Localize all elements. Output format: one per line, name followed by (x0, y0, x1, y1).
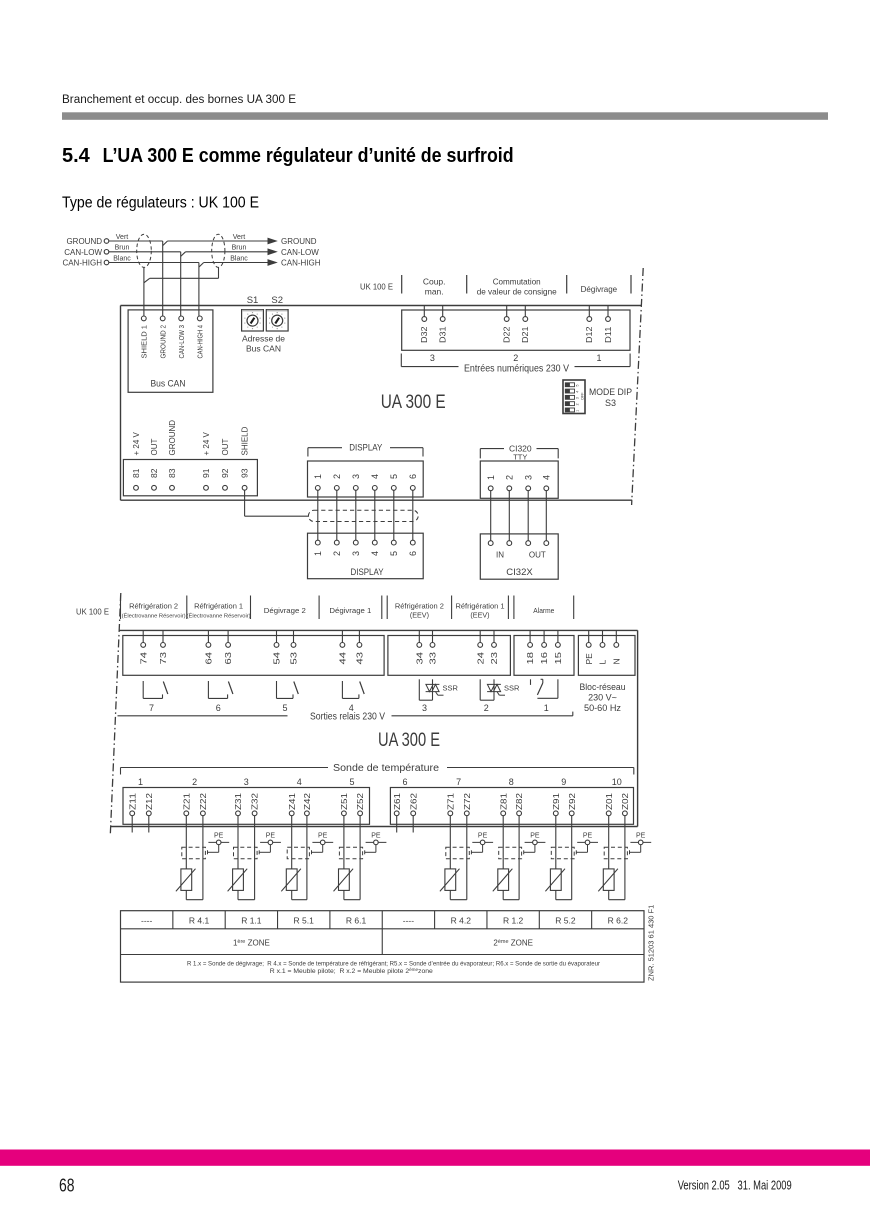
svg-text:L: L (598, 660, 608, 665)
svg-text:Z62: Z62 (408, 793, 418, 810)
svg-text:D12: D12 (585, 326, 594, 343)
svg-text:3: 3 (244, 777, 249, 787)
svg-text:GROUND: GROUND (168, 420, 177, 456)
svg-text:3: 3 (422, 703, 427, 713)
svg-text:82: 82 (149, 468, 159, 478)
svg-text:Dégivrage 2: Dégivrage 2 (264, 606, 306, 615)
svg-text:Réfrigération 1: Réfrigération 1 (194, 602, 243, 611)
svg-text:93: 93 (240, 468, 250, 478)
svg-text:Z01: Z01 (604, 793, 614, 810)
svg-text:4: 4 (576, 391, 580, 393)
svg-text:15: 15 (553, 652, 563, 665)
svg-text:4: 4 (370, 551, 380, 556)
svg-text:3: 3 (523, 475, 533, 480)
svg-text:1: 1 (313, 474, 323, 479)
svg-text:5.4: 5.4 (62, 145, 91, 167)
svg-text:de valeur de consigne: de valeur de consigne (477, 287, 557, 297)
svg-text:CAN-LOW: CAN-LOW (64, 248, 102, 257)
svg-text:Dégivrage: Dégivrage (581, 284, 618, 294)
svg-text:91: 91 (201, 468, 211, 478)
svg-text:L’UA 300 E comme régulateur d’: L’UA 300 E comme régulateur d’unité de s… (103, 145, 514, 167)
svg-text:Z71: Z71 (445, 793, 455, 810)
svg-text:CAN-HIGH 4: CAN-HIGH 4 (196, 325, 205, 359)
svg-text:(EEV): (EEV) (410, 610, 429, 619)
svg-text:(Électrovanne Réservoir): (Électrovanne Réservoir) (122, 612, 186, 619)
svg-text:83: 83 (167, 468, 177, 478)
svg-text:Réfrigération 1: Réfrigération 1 (456, 602, 505, 611)
svg-text:Bus CAN: Bus CAN (246, 344, 281, 354)
svg-text:Z11: Z11 (127, 793, 137, 810)
svg-text:UA 300 E: UA 300 E (378, 730, 440, 751)
svg-text:Blanc: Blanc (113, 255, 131, 262)
svg-text:Type de régulateurs : UK 100 E: Type de régulateurs : UK 100 E (62, 195, 259, 212)
svg-text:D11: D11 (604, 326, 613, 343)
svg-text:R 1.x = Sonde de dégivrage; R: R 1.x = Sonde de dégivrage; R 4.x = Sond… (187, 960, 601, 967)
svg-text:----: ---- (141, 916, 152, 926)
svg-text:1: 1 (544, 703, 549, 713)
svg-text:Vert: Vert (116, 234, 129, 241)
svg-text:1ère ZONE: 1ère ZONE (233, 939, 270, 948)
svg-text:4: 4 (297, 777, 302, 787)
svg-text:2: 2 (332, 474, 342, 479)
svg-text:Sonde de température: Sonde de température (333, 763, 439, 774)
svg-text:UK 100 E: UK 100 E (360, 282, 393, 292)
svg-text:6: 6 (408, 474, 418, 479)
svg-text:D31: D31 (439, 326, 448, 343)
svg-text:Z42: Z42 (302, 793, 312, 810)
svg-text:1: 1 (596, 353, 601, 363)
svg-text:44: 44 (337, 652, 347, 665)
svg-text:PE: PE (636, 832, 646, 839)
svg-text:23: 23 (489, 652, 499, 665)
svg-text:R x.1 = Meuble pilote; R x.2: R x.1 = Meuble pilote; R x.2 = Meuble pi… (270, 967, 433, 975)
svg-text:3: 3 (430, 353, 435, 363)
svg-text:CAN-HIGH: CAN-HIGH (281, 259, 321, 268)
svg-text:SHIELD: SHIELD (240, 426, 249, 455)
svg-text:6: 6 (216, 703, 221, 713)
svg-text:UA 300 E: UA 300 E (381, 392, 446, 413)
svg-text:OFF: OFF (580, 392, 584, 400)
svg-text:Z92: Z92 (567, 793, 577, 810)
svg-text:OUT: OUT (529, 551, 546, 560)
svg-text:5: 5 (389, 474, 399, 479)
svg-text:Entrées numériques 230 V: Entrées numériques 230 V (464, 364, 569, 375)
svg-text:PE: PE (318, 832, 328, 839)
svg-text:PE: PE (584, 653, 594, 665)
svg-text:CAN-HIGH: CAN-HIGH (62, 259, 102, 268)
svg-text:9: 9 (561, 777, 566, 787)
svg-text:43: 43 (354, 652, 364, 665)
svg-text:2: 2 (332, 551, 342, 556)
svg-text:CAN-LOW 3: CAN-LOW 3 (177, 325, 186, 359)
svg-text:Commutation: Commutation (493, 277, 541, 287)
svg-text:CAN-LOW: CAN-LOW (281, 248, 319, 257)
svg-text:2: 2 (484, 703, 489, 713)
svg-text:73: 73 (158, 652, 168, 665)
svg-text:53: 53 (289, 652, 299, 665)
svg-text:Z82: Z82 (514, 793, 524, 810)
svg-text:Blanc: Blanc (230, 255, 248, 262)
svg-text:Dégivrage 1: Dégivrage 1 (329, 606, 371, 615)
svg-text:UK 100 E: UK 100 E (76, 607, 109, 617)
svg-text:64: 64 (203, 652, 213, 665)
svg-text:2: 2 (576, 403, 580, 405)
svg-text:Z32: Z32 (250, 793, 260, 810)
svg-text:GROUND: GROUND (66, 237, 102, 246)
svg-text:R 6.1: R 6.1 (346, 916, 367, 926)
svg-text:Adresse de: Adresse de (242, 334, 285, 344)
svg-text:5: 5 (576, 385, 580, 387)
svg-text:Brun: Brun (115, 245, 130, 252)
svg-text:Z02: Z02 (620, 793, 630, 810)
svg-text:3: 3 (351, 551, 361, 556)
svg-text:54: 54 (272, 652, 282, 665)
svg-text:PE: PE (583, 832, 593, 839)
svg-text:PE: PE (371, 832, 381, 839)
svg-text:Réfrigération 2: Réfrigération 2 (395, 602, 444, 611)
svg-text:7: 7 (149, 703, 154, 713)
svg-text:man.: man. (425, 287, 444, 297)
svg-text:S3: S3 (605, 398, 616, 408)
svg-text:SSR: SSR (504, 683, 520, 692)
svg-text:3: 3 (351, 474, 361, 479)
svg-text:Sorties relais 230 V: Sorties relais 230 V (310, 712, 385, 723)
svg-text:34: 34 (414, 652, 424, 665)
svg-text:5: 5 (389, 551, 399, 556)
svg-text:5: 5 (282, 703, 287, 713)
svg-text:OUT: OUT (221, 439, 230, 456)
svg-text:Brun: Brun (232, 245, 247, 252)
svg-text:(Électrovanne Réservoir): (Électrovanne Réservoir) (187, 612, 251, 619)
svg-text:Z81: Z81 (498, 793, 508, 810)
svg-text:24: 24 (475, 652, 485, 665)
svg-text:Z22: Z22 (198, 793, 208, 810)
svg-text:R 1.1: R 1.1 (241, 916, 262, 926)
svg-text:10: 10 (612, 777, 622, 787)
svg-text:2: 2 (513, 353, 518, 363)
svg-text:MODE DIP: MODE DIP (589, 387, 632, 397)
svg-text:Z41: Z41 (287, 793, 297, 810)
svg-text:Bloc-réseau: Bloc-réseau (580, 682, 626, 692)
svg-text:DISPLAY: DISPLAY (351, 567, 384, 577)
svg-text:6: 6 (408, 551, 418, 556)
svg-text:S2: S2 (271, 295, 283, 306)
svg-text:SSR: SSR (443, 683, 459, 692)
svg-text:IN: IN (496, 551, 504, 560)
svg-text:S1: S1 (247, 295, 259, 306)
svg-text:63: 63 (223, 652, 233, 665)
svg-text:Vert: Vert (233, 234, 246, 241)
svg-text:TTY: TTY (513, 453, 527, 462)
svg-text:R 5.2: R 5.2 (555, 916, 576, 926)
svg-text:D21: D21 (521, 326, 530, 343)
svg-text:R 4.1: R 4.1 (189, 916, 210, 926)
svg-text:+ 24 V: + 24 V (132, 431, 141, 455)
svg-text:Z31: Z31 (233, 793, 243, 810)
svg-text:4: 4 (542, 475, 552, 480)
svg-text:R 6.2: R 6.2 (608, 916, 629, 926)
svg-text:1: 1 (576, 410, 580, 412)
svg-text:PE: PE (266, 832, 276, 839)
svg-text:Z21: Z21 (181, 793, 191, 810)
svg-text:1: 1 (313, 551, 323, 556)
svg-text:GROUND 2: GROUND 2 (158, 325, 167, 359)
svg-text:81: 81 (131, 468, 141, 478)
svg-text:R 4.2: R 4.2 (451, 916, 472, 926)
svg-text:1: 1 (486, 475, 496, 480)
svg-text:DISPLAY: DISPLAY (349, 443, 382, 453)
svg-text:68: 68 (59, 1176, 75, 1196)
svg-text:D32: D32 (420, 326, 429, 343)
svg-text:230 V~: 230 V~ (588, 692, 617, 702)
svg-text:D22: D22 (503, 326, 512, 343)
svg-text:2ème ZONE: 2ème ZONE (493, 939, 533, 948)
svg-text:16: 16 (539, 652, 549, 665)
svg-text:50-60 Hz: 50-60 Hz (584, 703, 621, 713)
svg-text:ZNR. 51203 61 430 F1: ZNR. 51203 61 430 F1 (647, 905, 656, 981)
svg-text:Z12: Z12 (144, 793, 154, 810)
svg-text:6: 6 (402, 777, 407, 787)
svg-text:CI32X: CI32X (506, 567, 533, 578)
svg-text:Alarme: Alarme (533, 606, 554, 615)
svg-text:7: 7 (456, 777, 461, 787)
svg-text:PE: PE (530, 832, 540, 839)
svg-text:92: 92 (220, 468, 230, 478)
svg-text:4: 4 (370, 474, 380, 479)
svg-text:8: 8 (509, 777, 514, 787)
svg-text:Z61: Z61 (392, 793, 402, 810)
svg-text:Version 2.05 31. Mai 2009: Version 2.05 31. Mai 2009 (678, 1178, 792, 1193)
svg-text:5: 5 (349, 777, 354, 787)
svg-text:2: 2 (505, 475, 515, 480)
svg-text:74: 74 (138, 652, 148, 665)
svg-text:GROUND: GROUND (281, 237, 317, 246)
svg-text:SHIELD 1: SHIELD 1 (140, 325, 149, 359)
svg-text:Réfrigération 2: Réfrigération 2 (129, 602, 178, 611)
svg-text:2: 2 (192, 777, 197, 787)
svg-text:1: 1 (138, 777, 143, 787)
svg-text:Z52: Z52 (355, 793, 365, 810)
svg-text:+ 24 V: + 24 V (202, 431, 211, 455)
svg-text:Bus CAN: Bus CAN (151, 379, 186, 390)
svg-text:(EEV): (EEV) (470, 610, 489, 619)
svg-text:18: 18 (525, 652, 535, 665)
svg-text:PE: PE (214, 832, 224, 839)
svg-text:----: ---- (403, 916, 414, 926)
svg-text:Z72: Z72 (462, 793, 472, 810)
svg-text:OUT: OUT (150, 439, 159, 456)
svg-text:Z91: Z91 (551, 793, 561, 810)
svg-text:N: N (611, 658, 621, 664)
svg-text:3: 3 (576, 397, 580, 399)
svg-text:Z51: Z51 (339, 793, 349, 810)
svg-text:R 1.2: R 1.2 (503, 916, 524, 926)
svg-text:PE: PE (478, 832, 488, 839)
svg-text:33: 33 (428, 652, 438, 665)
svg-text:Branchement et occup. des born: Branchement et occup. des bornes UA 300 … (62, 94, 296, 106)
svg-text:Coup.: Coup. (423, 277, 446, 287)
svg-text:R 5.1: R 5.1 (294, 916, 315, 926)
